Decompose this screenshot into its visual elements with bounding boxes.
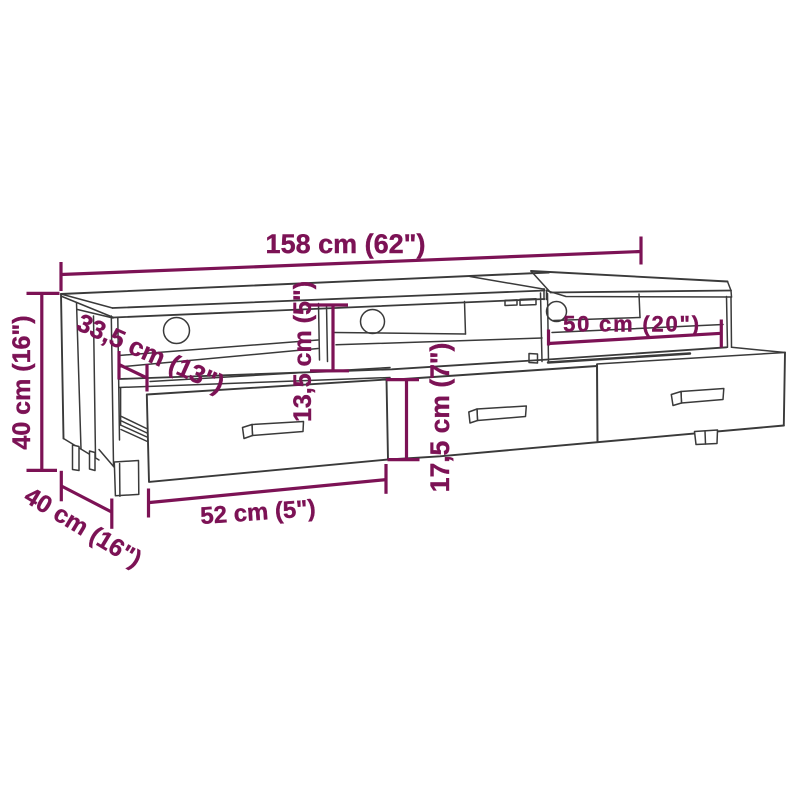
svg-text:13,5 cm (5"): 13,5 cm (5") xyxy=(289,281,317,422)
svg-text:40 cm (16"): 40 cm (16") xyxy=(8,315,36,449)
svg-text:158 cm (62"): 158 cm (62") xyxy=(266,229,426,259)
svg-text:50 cm (20"): 50 cm (20") xyxy=(563,312,701,337)
svg-text:17,5 cm (7"): 17,5 cm (7") xyxy=(425,343,455,493)
